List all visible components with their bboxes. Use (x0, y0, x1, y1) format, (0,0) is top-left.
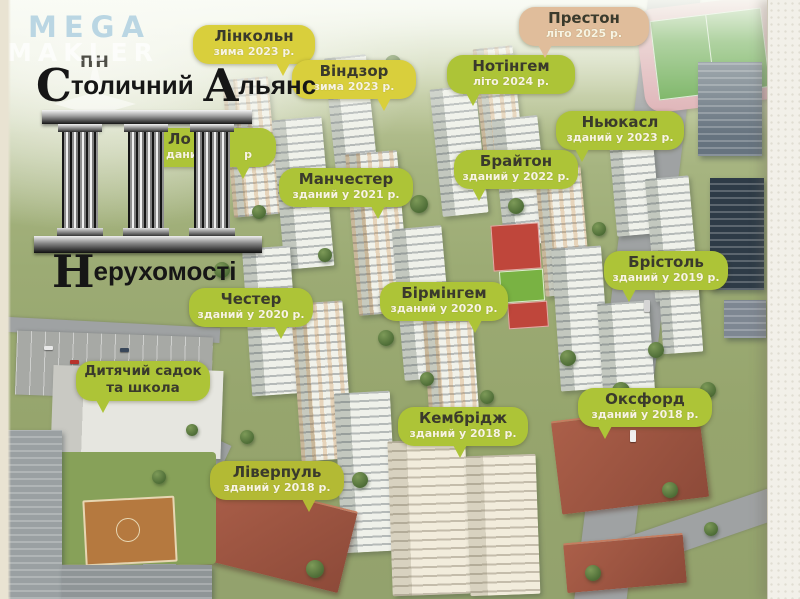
logo-column (62, 124, 98, 238)
label-title: Ліверпуль (218, 464, 336, 481)
logo-column (128, 124, 164, 238)
label-subtitle: літо 2025 р. (527, 27, 641, 41)
car (44, 346, 53, 350)
label-oxford: Оксфорд зданий у 2018 р. (578, 388, 712, 427)
building (698, 62, 762, 156)
label-subtitle: зданий у 2018 р. (218, 481, 336, 495)
tree (592, 222, 606, 236)
billboard-photo: Ло данир ПН СтоличнийАльянс Нерухомості … (0, 0, 800, 599)
car (70, 360, 79, 364)
label-subtitle: зданий у 2019 р. (612, 271, 720, 285)
label-preston: Престон літо 2025 р. (519, 7, 649, 46)
label-newcastle: Ньюкасл зданий у 2023 р. (556, 111, 684, 150)
label-title: Манчестер (287, 171, 405, 188)
tree (508, 198, 524, 214)
label-subtitle: зданий у 2023 р. (564, 131, 676, 145)
photo-frame-right (767, 0, 800, 599)
logo-line-2: Нерухомості (52, 254, 237, 290)
label-title: Дитячий садок (84, 364, 202, 380)
label-subtitle: зданий у 2020 р. (388, 302, 500, 316)
label-subtitle: зданий у 2021 р. (287, 188, 405, 202)
tree (378, 330, 394, 346)
tree (240, 430, 254, 444)
tree (410, 195, 428, 213)
tree (560, 350, 576, 366)
label-title: Ньюкасл (564, 114, 676, 131)
sports-court (490, 222, 541, 271)
label-title: Лінкольн (201, 28, 307, 45)
tree (152, 470, 166, 484)
label-brighton: Брайтон зданий у 2022 р. (454, 150, 578, 189)
label-title: Кембрідж (406, 410, 520, 427)
building-terracotta-roof (563, 533, 687, 593)
tree (585, 565, 601, 581)
watermark-makler: MAKLER (7, 40, 159, 65)
label-liverpool: Ліверпуль зданий у 2018 р. (210, 461, 344, 500)
label-title: Бірмінгем (388, 285, 500, 302)
sports-court (507, 301, 549, 330)
label-title: Оксфорд (586, 391, 704, 408)
tree (352, 472, 368, 488)
car (120, 348, 129, 352)
tree (186, 424, 198, 436)
building (466, 454, 541, 596)
tree (306, 560, 324, 578)
car (630, 430, 636, 442)
label-title: Брістоль (612, 254, 720, 271)
label-subtitle: літо 2024 р. (455, 75, 567, 89)
label-subtitle: та школа (84, 380, 202, 397)
label-subtitle: зданий у 2018 р. (586, 408, 704, 422)
tree (318, 248, 332, 262)
label-title: Престон (527, 10, 641, 27)
building (62, 565, 212, 599)
label-cambridge: Кембрідж зданий у 2018 р. (398, 407, 528, 446)
label-subtitle: зданий у 2018 р. (406, 427, 520, 441)
label-subtitle: зданий у 2020 р. (197, 308, 305, 322)
agency-logo: ПН СтоличнийАльянс Нерухомості (28, 50, 276, 305)
tree (648, 342, 664, 358)
tree (420, 372, 434, 386)
label-bristol: Брістоль зданий у 2019 р. (604, 251, 728, 290)
tree (480, 390, 494, 404)
label-nottingham: Нотінгем літо 2024 р. (447, 55, 575, 94)
logo-column-top-beam (42, 110, 252, 124)
logo-line-1: СтоличнийАльянс (36, 68, 316, 104)
label-subtitle: зданий у 2022 р. (462, 170, 570, 184)
tree (704, 522, 718, 536)
photo-frame-left (0, 0, 11, 599)
label-birmingham: Бірмінгем зданий у 2020 р. (380, 282, 508, 321)
tree (662, 482, 678, 498)
label-manchester: Манчестер зданий у 2021 р. (279, 168, 413, 207)
logo-column (194, 124, 230, 238)
label-title: Брайтон (462, 153, 570, 170)
car (644, 300, 650, 312)
label-kindergarten-school: Дитячий садок та школа (76, 361, 210, 401)
building (724, 300, 766, 338)
